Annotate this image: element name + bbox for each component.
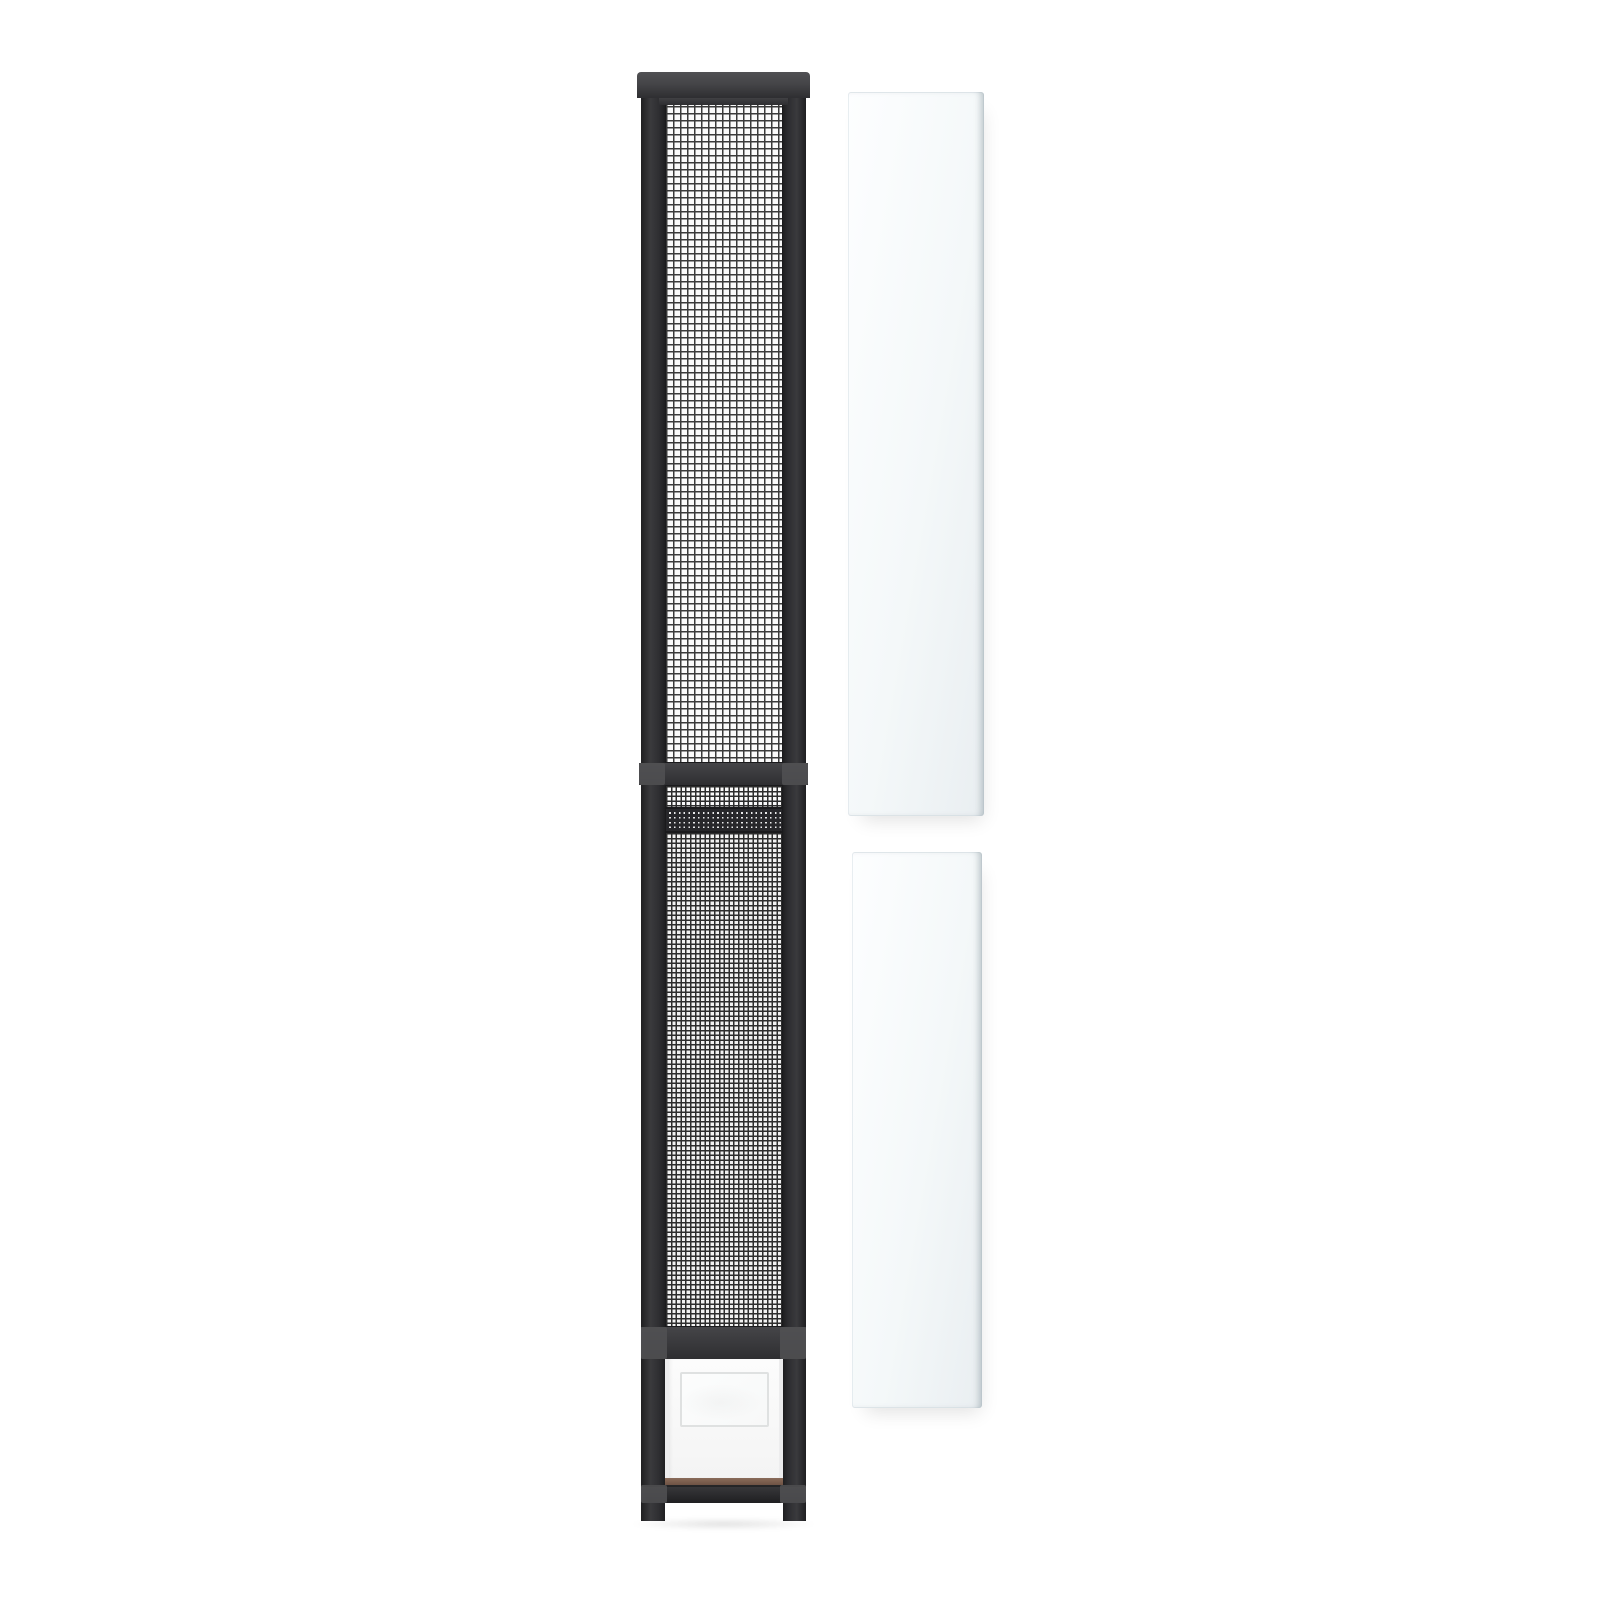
right-frame-rail bbox=[783, 72, 806, 1521]
bottom-bar-end-cap-right bbox=[780, 1485, 806, 1503]
junction-end-cap-left bbox=[639, 763, 665, 785]
junction-end-cap-right bbox=[782, 763, 808, 785]
glass-side-panel-lower bbox=[852, 852, 982, 1408]
pet-door-flap bbox=[680, 1372, 769, 1427]
threshold-kick-strip bbox=[665, 1478, 783, 1485]
product-image-canvas bbox=[0, 0, 1600, 1600]
bottom-frame-bar bbox=[641, 1485, 806, 1503]
pet-bar-end-cap-left bbox=[641, 1327, 667, 1359]
lower-screen-mesh bbox=[665, 832, 783, 1327]
single-layer-mesh-strip bbox=[665, 785, 783, 808]
left-frame-rail bbox=[641, 72, 665, 1521]
overlapping-mesh-band bbox=[665, 808, 783, 832]
bottom-bar-end-cap-left bbox=[641, 1485, 667, 1503]
glass-side-panel-upper bbox=[848, 92, 984, 816]
screen-door-assembly bbox=[641, 72, 806, 1521]
pet-door-top-crossbar bbox=[641, 1327, 806, 1359]
upper-screen-mesh bbox=[665, 98, 783, 763]
pet-bar-end-cap-right bbox=[780, 1327, 806, 1359]
pet-door-white-panel bbox=[665, 1359, 783, 1478]
telescoping-junction-crossbar bbox=[639, 763, 808, 785]
top-frame-cap bbox=[637, 72, 810, 98]
